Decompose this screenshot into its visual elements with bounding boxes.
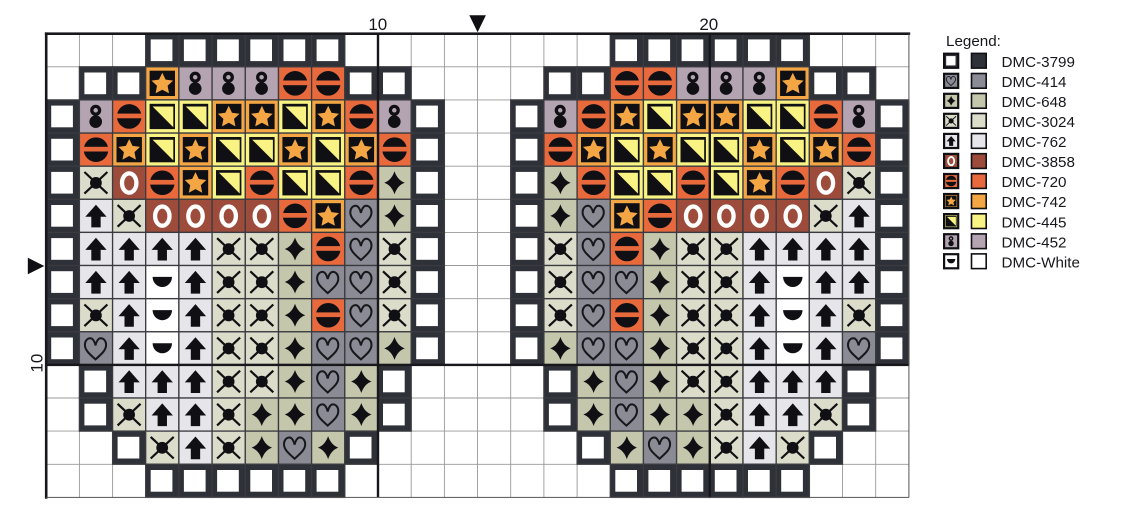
svg-text:DMC-414: DMC-414: [1002, 74, 1067, 91]
svg-text:DMC-3858: DMC-3858: [1002, 154, 1075, 171]
svg-text:DMC-762: DMC-762: [1002, 134, 1067, 151]
svg-text:DMC-648: DMC-648: [1002, 94, 1067, 111]
svg-text:DMC-452: DMC-452: [1002, 234, 1067, 251]
svg-text:DMC-3024: DMC-3024: [1002, 114, 1075, 131]
svg-text:DMC-445: DMC-445: [1002, 214, 1067, 231]
svg-text:DMC-720: DMC-720: [1002, 174, 1067, 191]
svg-text:10: 10: [28, 354, 47, 373]
svg-text:DMC-742: DMC-742: [1002, 194, 1067, 211]
svg-text:10: 10: [368, 15, 387, 34]
svg-text:20: 20: [699, 15, 718, 34]
svg-text:DMC-3799: DMC-3799: [1002, 54, 1075, 71]
svg-text:Legend:: Legend:: [946, 33, 1001, 50]
svg-text:DMC-White: DMC-White: [1002, 254, 1080, 271]
